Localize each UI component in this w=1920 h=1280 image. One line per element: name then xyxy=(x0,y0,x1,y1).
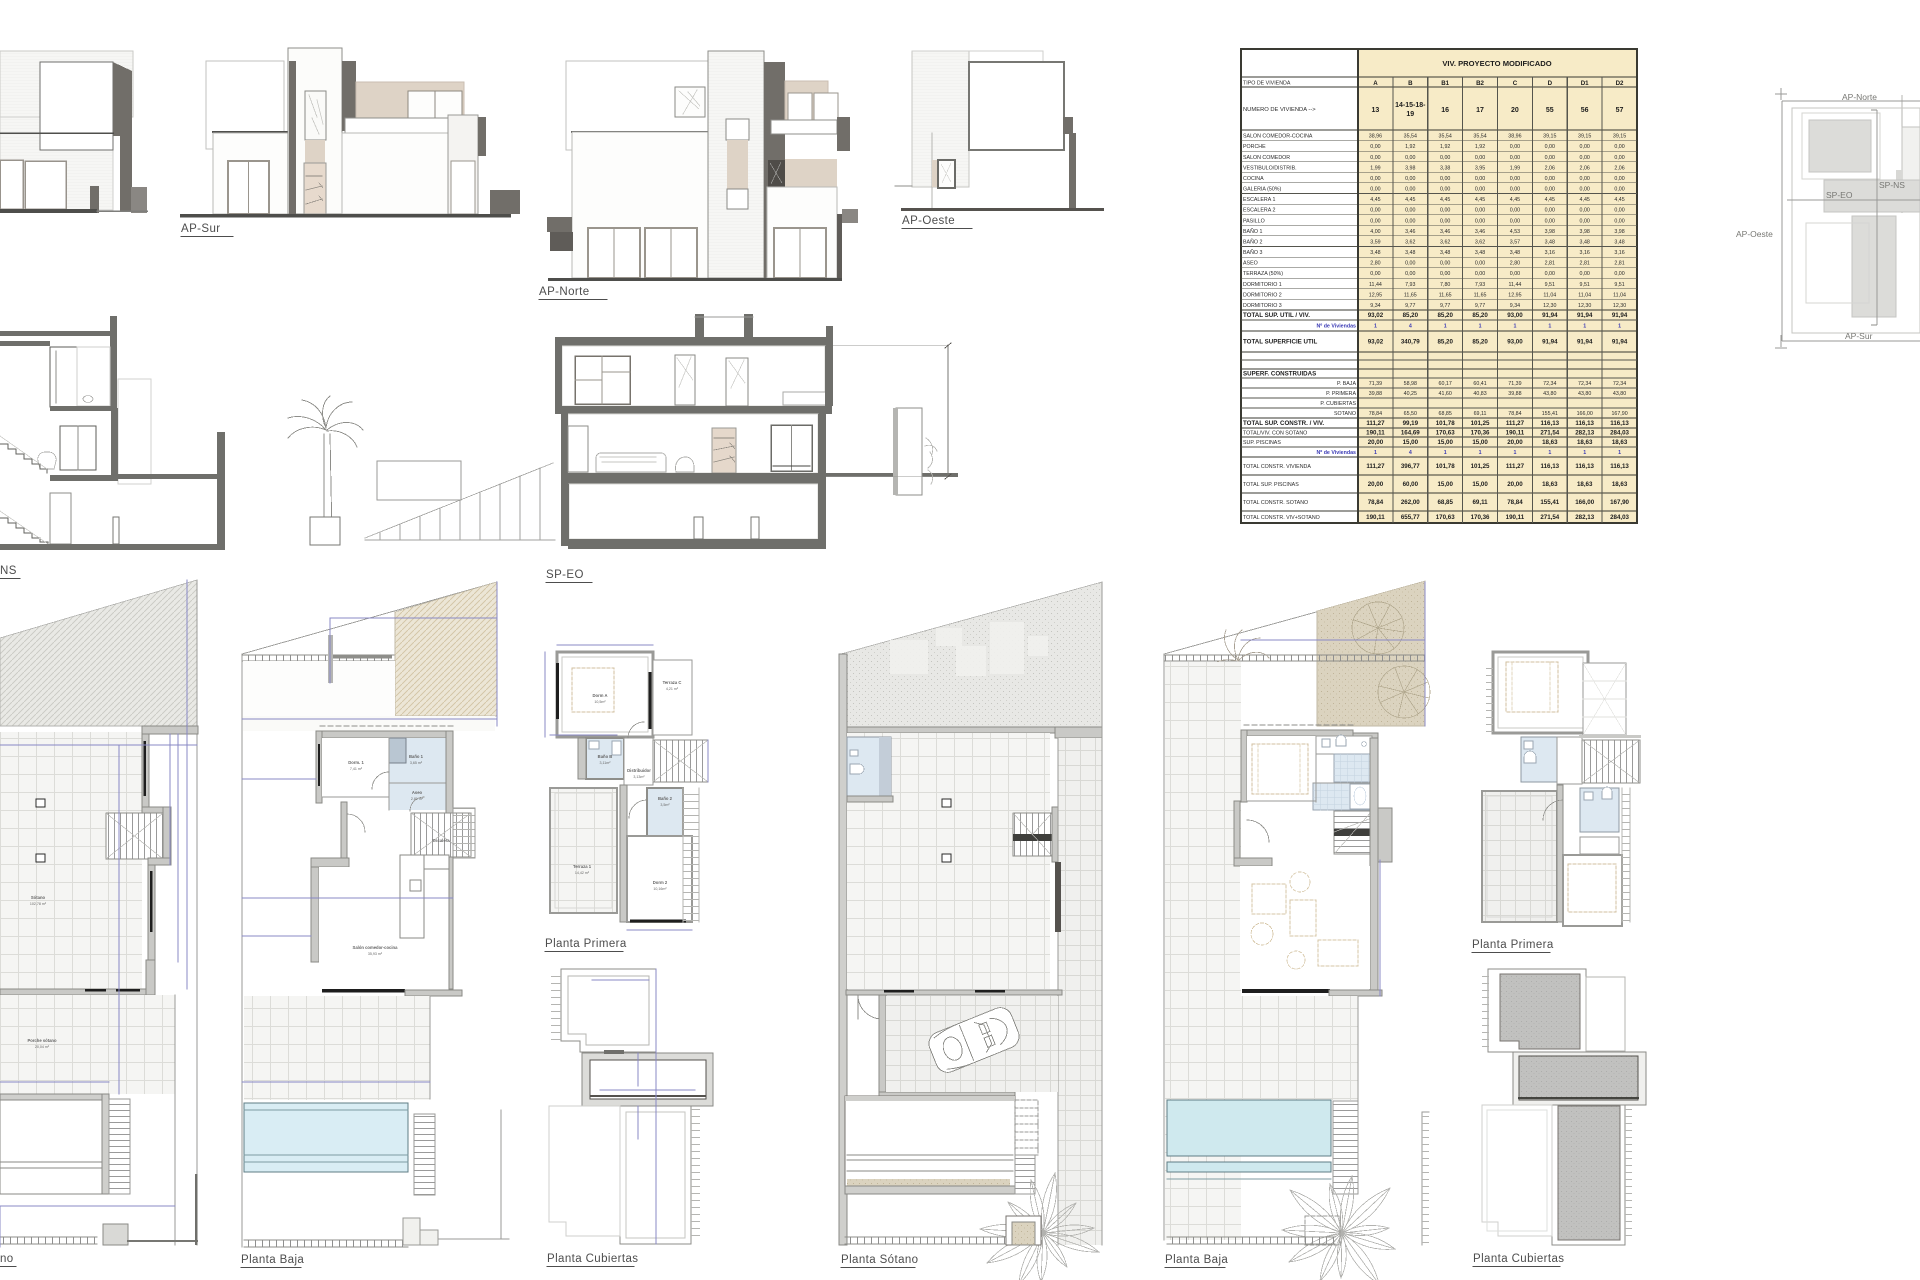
svg-text:4,45: 4,45 xyxy=(1440,197,1450,203)
svg-text:3,46: 3,46 xyxy=(1405,229,1415,235)
svg-text:TOTAL SUP. UTIL / VIV.: TOTAL SUP. UTIL / VIV. xyxy=(1243,312,1310,319)
svg-text:11,65: 11,65 xyxy=(1439,292,1452,298)
svg-text:284,03: 284,03 xyxy=(1610,430,1629,437)
svg-text:7,80: 7,80 xyxy=(1440,282,1450,288)
svg-text:69,11: 69,11 xyxy=(1472,499,1488,506)
svg-text:18,63: 18,63 xyxy=(1612,439,1628,446)
svg-text:BAÑO 2: BAÑO 2 xyxy=(1243,238,1262,245)
svg-text:3,46: 3,46 xyxy=(1440,229,1450,235)
svg-text:0,00: 0,00 xyxy=(1370,144,1380,150)
svg-text:1: 1 xyxy=(1618,324,1621,330)
svg-text:166,00: 166,00 xyxy=(1575,499,1594,506)
svg-text:3,48: 3,48 xyxy=(1440,250,1450,256)
svg-text:7,41 m²: 7,41 m² xyxy=(350,767,363,771)
svg-text:A: A xyxy=(1373,80,1378,87)
svg-text:93,00: 93,00 xyxy=(1507,312,1523,319)
svg-text:4,45: 4,45 xyxy=(1545,197,1555,203)
svg-text:39,88: 39,88 xyxy=(1369,391,1382,397)
svg-text:1: 1 xyxy=(1444,324,1447,330)
svg-text:155,41: 155,41 xyxy=(1542,411,1558,417)
svg-text:0,00: 0,00 xyxy=(1405,155,1415,161)
svg-text:0,00: 0,00 xyxy=(1440,271,1450,277)
svg-text:101,25: 101,25 xyxy=(1471,420,1490,427)
svg-text:9,51: 9,51 xyxy=(1614,282,1624,288)
svg-text:43,80: 43,80 xyxy=(1613,391,1626,397)
svg-text:SP-EO: SP-EO xyxy=(1826,190,1853,200)
svg-text:3,48: 3,48 xyxy=(1545,239,1555,245)
svg-text:P. BAJA: P. BAJA xyxy=(1337,381,1357,387)
svg-text:3,5m²: 3,5m² xyxy=(660,803,670,807)
svg-text:3,11m²: 3,11m² xyxy=(600,761,612,765)
svg-text:111,27: 111,27 xyxy=(1506,463,1525,470)
svg-text:18,63: 18,63 xyxy=(1542,481,1558,488)
svg-text:0,00: 0,00 xyxy=(1580,218,1590,224)
svg-text:Dorm A: Dorm A xyxy=(593,693,608,698)
svg-text:Terraza 1: Terraza 1 xyxy=(573,864,592,869)
svg-text:20,00: 20,00 xyxy=(1507,439,1523,446)
svg-text:Escalera: Escalera xyxy=(432,838,450,843)
svg-text:1: 1 xyxy=(1618,450,1621,456)
svg-text:0,00: 0,00 xyxy=(1545,208,1555,214)
svg-text:12,30: 12,30 xyxy=(1613,303,1626,309)
svg-text:170,63: 170,63 xyxy=(1436,514,1455,521)
svg-text:116,13: 116,13 xyxy=(1575,463,1594,470)
svg-text:Aseo: Aseo xyxy=(412,790,423,795)
svg-text:39,15: 39,15 xyxy=(1578,134,1591,140)
svg-text:1: 1 xyxy=(1513,450,1516,456)
svg-text:0,00: 0,00 xyxy=(1580,176,1590,182)
svg-text:ASEO: ASEO xyxy=(1243,261,1258,267)
svg-text:71,39: 71,39 xyxy=(1369,381,1382,387)
svg-text:19: 19 xyxy=(1406,111,1414,118)
svg-text:2,06: 2,06 xyxy=(1545,165,1555,171)
svg-text:0,00: 0,00 xyxy=(1440,208,1450,214)
svg-text:190,11: 190,11 xyxy=(1506,430,1525,437)
svg-text:4,53: 4,53 xyxy=(1510,229,1520,235)
svg-text:39,15: 39,15 xyxy=(1543,134,1556,140)
svg-text:B2: B2 xyxy=(1476,80,1484,87)
svg-text:4,45: 4,45 xyxy=(1475,197,1485,203)
svg-text:Planta Sótano: Planta Sótano xyxy=(841,1254,918,1266)
svg-text:TOTAL CONSTR. SOTANO: TOTAL CONSTR. SOTANO xyxy=(1243,500,1308,506)
svg-text:0,00: 0,00 xyxy=(1440,155,1450,161)
svg-text:91,94: 91,94 xyxy=(1542,339,1558,346)
svg-text:TERRAZA (50%): TERRAZA (50%) xyxy=(1243,271,1283,277)
svg-text:55: 55 xyxy=(1546,107,1554,114)
svg-text:4,45: 4,45 xyxy=(1510,197,1520,203)
svg-text:0,00: 0,00 xyxy=(1580,187,1590,193)
svg-text:0,00: 0,00 xyxy=(1510,187,1520,193)
svg-text:102,78 m²: 102,78 m² xyxy=(30,902,47,906)
svg-text:TOTAL/VIV. CON SOTANO: TOTAL/VIV. CON SOTANO xyxy=(1243,431,1307,437)
svg-text:0,00: 0,00 xyxy=(1475,155,1485,161)
svg-text:0,00: 0,00 xyxy=(1475,271,1485,277)
svg-text:166,00: 166,00 xyxy=(1577,411,1593,417)
svg-text:91,94: 91,94 xyxy=(1612,339,1628,346)
svg-text:9,34: 9,34 xyxy=(1370,303,1380,309)
svg-text:11,04: 11,04 xyxy=(1578,292,1591,298)
svg-text:0,00: 0,00 xyxy=(1405,218,1415,224)
svg-text:4,45: 4,45 xyxy=(1370,197,1380,203)
svg-text:170,36: 170,36 xyxy=(1471,514,1490,521)
svg-text:Dorm. 1: Dorm. 1 xyxy=(348,760,364,765)
svg-text:BAÑO 1: BAÑO 1 xyxy=(1243,228,1262,235)
svg-text:0,00: 0,00 xyxy=(1614,218,1624,224)
svg-text:93,02: 93,02 xyxy=(1368,339,1384,346)
svg-text:7,93: 7,93 xyxy=(1405,282,1415,288)
svg-text:1,99: 1,99 xyxy=(1510,165,1520,171)
svg-text:0,00: 0,00 xyxy=(1405,187,1415,193)
svg-text:17: 17 xyxy=(1476,107,1484,114)
svg-text:111,27: 111,27 xyxy=(1366,463,1385,470)
svg-text:20,00: 20,00 xyxy=(1507,481,1523,488)
svg-text:Nº de Viviendas: Nº de Viviendas xyxy=(1316,324,1356,330)
svg-text:Nº de Viviendas: Nº de Viviendas xyxy=(1316,450,1356,456)
svg-text:15,00: 15,00 xyxy=(1472,439,1488,446)
svg-text:11,65: 11,65 xyxy=(1404,292,1417,298)
svg-text:3,48: 3,48 xyxy=(1405,250,1415,256)
svg-text:101,78: 101,78 xyxy=(1436,463,1455,470)
svg-text:Porche sótano: Porche sótano xyxy=(27,1038,57,1043)
svg-text:3,48: 3,48 xyxy=(1510,250,1520,256)
svg-text:3,59: 3,59 xyxy=(1370,239,1380,245)
svg-text:111,27: 111,27 xyxy=(1366,420,1385,427)
svg-text:3,98: 3,98 xyxy=(1614,229,1624,235)
svg-text:0,00: 0,00 xyxy=(1580,208,1590,214)
svg-text:10,16m²: 10,16m² xyxy=(653,887,667,891)
svg-text:0,00: 0,00 xyxy=(1510,176,1520,182)
svg-text:93,02: 93,02 xyxy=(1368,312,1384,319)
svg-text:PASILLO: PASILLO xyxy=(1243,218,1265,224)
svg-text:1: 1 xyxy=(1583,450,1586,456)
svg-text:14-15-18-: 14-15-18- xyxy=(1395,102,1426,109)
svg-text:0,00: 0,00 xyxy=(1475,187,1485,193)
svg-text:Planta Baja: Planta Baja xyxy=(1165,1254,1228,1266)
svg-text:0,00: 0,00 xyxy=(1440,176,1450,182)
svg-text:655,77: 655,77 xyxy=(1401,514,1420,521)
svg-text:Sótano: Sótano xyxy=(31,895,46,900)
svg-text:0,00: 0,00 xyxy=(1614,144,1624,150)
svg-text:40,83: 40,83 xyxy=(1473,391,1486,397)
svg-text:190,11: 190,11 xyxy=(1366,514,1385,521)
svg-text:38,96: 38,96 xyxy=(1508,134,1521,140)
svg-text:SP-NS: SP-NS xyxy=(1879,180,1905,190)
svg-text:3,62: 3,62 xyxy=(1405,239,1415,245)
svg-text:284,03: 284,03 xyxy=(1610,514,1629,521)
svg-text:1,92: 1,92 xyxy=(1440,144,1450,150)
svg-text:0,00: 0,00 xyxy=(1614,187,1624,193)
svg-text:ESCALERA 2: ESCALERA 2 xyxy=(1243,208,1275,214)
svg-text:11,44: 11,44 xyxy=(1509,282,1522,288)
svg-text:Planta Cubiertas: Planta Cubiertas xyxy=(547,1253,638,1265)
svg-text:0,00: 0,00 xyxy=(1545,176,1555,182)
svg-text:1,99: 1,99 xyxy=(1370,165,1380,171)
svg-text:101,25: 101,25 xyxy=(1471,463,1490,470)
svg-text:111,27: 111,27 xyxy=(1506,420,1525,427)
svg-text:167,90: 167,90 xyxy=(1610,499,1629,506)
svg-text:0,00: 0,00 xyxy=(1614,155,1624,161)
svg-text:0,00: 0,00 xyxy=(1405,261,1415,267)
svg-text:15,00: 15,00 xyxy=(1472,481,1488,488)
svg-text:85,20: 85,20 xyxy=(1437,312,1453,319)
svg-text:COCINA: COCINA xyxy=(1243,176,1264,182)
svg-text:116,13: 116,13 xyxy=(1541,420,1560,427)
svg-text:AP-Sur: AP-Sur xyxy=(181,223,220,235)
svg-text:35,54: 35,54 xyxy=(1439,134,1452,140)
svg-text:4,45: 4,45 xyxy=(1405,197,1415,203)
svg-text:Planta Primera: Planta Primera xyxy=(1472,939,1554,951)
svg-text:0,00: 0,00 xyxy=(1510,271,1520,277)
svg-text:57: 57 xyxy=(1616,107,1624,114)
svg-text:68,85: 68,85 xyxy=(1437,499,1453,506)
svg-text:1: 1 xyxy=(1583,324,1586,330)
svg-text:38,96: 38,96 xyxy=(1369,134,1382,140)
svg-text:3,16: 3,16 xyxy=(1545,250,1555,256)
svg-text:16: 16 xyxy=(1441,107,1449,114)
svg-text:4,00: 4,00 xyxy=(1370,229,1380,235)
svg-text:2,80: 2,80 xyxy=(1510,261,1520,267)
svg-text:3,48: 3,48 xyxy=(1580,239,1590,245)
svg-text:TOTAL SUP. PISCINAS: TOTAL SUP. PISCINAS xyxy=(1243,482,1299,488)
svg-text:DORMITORIO 2: DORMITORIO 2 xyxy=(1243,292,1282,298)
svg-text:D1: D1 xyxy=(1581,80,1589,87)
svg-text:0,00: 0,00 xyxy=(1545,144,1555,150)
svg-text:11,44: 11,44 xyxy=(1369,282,1382,288)
svg-text:11,04: 11,04 xyxy=(1613,292,1626,298)
svg-text:AP-Sur: AP-Sur xyxy=(1845,331,1873,341)
svg-text:2,80: 2,80 xyxy=(1370,261,1380,267)
svg-text:0,00: 0,00 xyxy=(1370,187,1380,193)
svg-text:0,00: 0,00 xyxy=(1440,187,1450,193)
svg-text:78,84: 78,84 xyxy=(1508,411,1521,417)
svg-text:TOTAL CONSTR. VIV+SOTANO: TOTAL CONSTR. VIV+SOTANO xyxy=(1243,515,1320,521)
svg-text:0,00: 0,00 xyxy=(1580,155,1590,161)
svg-text:91,94: 91,94 xyxy=(1577,312,1593,319)
svg-text:3,98: 3,98 xyxy=(1405,165,1415,171)
svg-text:0,00: 0,00 xyxy=(1405,271,1415,277)
svg-text:41,60: 41,60 xyxy=(1439,391,1452,397)
svg-text:72,34: 72,34 xyxy=(1543,381,1556,387)
svg-text:4: 4 xyxy=(1409,450,1412,456)
svg-text:3,48: 3,48 xyxy=(1475,250,1485,256)
svg-text:58,98: 58,98 xyxy=(1404,381,1417,387)
svg-text:ESCALERA 1: ESCALERA 1 xyxy=(1243,197,1275,203)
svg-text:68,85: 68,85 xyxy=(1439,411,1452,417)
svg-text:9,77: 9,77 xyxy=(1440,303,1450,309)
svg-text:0,00: 0,00 xyxy=(1370,218,1380,224)
svg-text:Terraza C: Terraza C xyxy=(663,680,682,685)
svg-text:Planta Primera: Planta Primera xyxy=(545,938,627,950)
svg-text:18,63: 18,63 xyxy=(1542,439,1558,446)
svg-text:116,13: 116,13 xyxy=(1575,420,1594,427)
svg-text:85,20: 85,20 xyxy=(1437,339,1453,346)
svg-text:15,00: 15,00 xyxy=(1403,439,1419,446)
svg-text:78,84: 78,84 xyxy=(1368,499,1384,506)
svg-text:9,51: 9,51 xyxy=(1580,282,1590,288)
svg-text:1: 1 xyxy=(1548,324,1551,330)
svg-text:101,78: 101,78 xyxy=(1436,420,1455,427)
svg-text:13: 13 xyxy=(1372,107,1380,114)
svg-text:43,80: 43,80 xyxy=(1578,391,1591,397)
svg-text:9,77: 9,77 xyxy=(1475,303,1485,309)
svg-text:4,45: 4,45 xyxy=(1614,197,1624,203)
svg-text:72,34: 72,34 xyxy=(1613,381,1626,387)
svg-text:0,00: 0,00 xyxy=(1440,218,1450,224)
svg-text:91,94: 91,94 xyxy=(1612,312,1628,319)
svg-text:SUP. PISCINAS: SUP. PISCINAS xyxy=(1243,440,1281,446)
svg-text:Salón comedor-cocina: Salón comedor-cocina xyxy=(353,945,399,950)
svg-text:3,16: 3,16 xyxy=(1580,250,1590,256)
svg-text:TOTAL SUP. CONSTR. / VIV.: TOTAL SUP. CONSTR. / VIV. xyxy=(1243,420,1324,427)
svg-text:NS: NS xyxy=(0,565,17,577)
svg-text:282,13: 282,13 xyxy=(1575,430,1594,437)
svg-text:262,00: 262,00 xyxy=(1401,499,1420,506)
svg-text:0,00: 0,00 xyxy=(1580,144,1590,150)
svg-text:39,15: 39,15 xyxy=(1613,134,1626,140)
svg-text:396,77: 396,77 xyxy=(1401,463,1420,470)
svg-text:Planta Baja: Planta Baja xyxy=(241,1254,304,1266)
svg-text:85,20: 85,20 xyxy=(1472,312,1488,319)
svg-text:SALON COMEDOR-COCINA: SALON COMEDOR-COCINA xyxy=(1243,134,1313,140)
svg-text:190,11: 190,11 xyxy=(1506,514,1525,521)
svg-text:0,00: 0,00 xyxy=(1545,271,1555,277)
svg-text:12,95: 12,95 xyxy=(1369,292,1382,298)
svg-text:65,50: 65,50 xyxy=(1404,411,1417,417)
svg-text:3,48: 3,48 xyxy=(1370,250,1380,256)
svg-text:DORMITORIO 1: DORMITORIO 1 xyxy=(1243,282,1282,288)
svg-text:116,13: 116,13 xyxy=(1541,463,1560,470)
svg-text:AP-Oeste: AP-Oeste xyxy=(902,215,955,227)
svg-text:Baño B: Baño B xyxy=(598,754,613,759)
svg-text:0,00: 0,00 xyxy=(1545,218,1555,224)
svg-text:72,34: 72,34 xyxy=(1578,381,1591,387)
svg-text:SP-EO: SP-EO xyxy=(546,569,584,581)
svg-text:40,25: 40,25 xyxy=(1404,391,1417,397)
svg-text:Distribuidor: Distribuidor xyxy=(627,768,651,773)
svg-text:10,5m²: 10,5m² xyxy=(594,700,606,704)
svg-text:35,54: 35,54 xyxy=(1473,134,1486,140)
svg-text:D: D xyxy=(1548,80,1553,87)
svg-text:Baño 1: Baño 1 xyxy=(409,754,424,759)
svg-text:35,54: 35,54 xyxy=(1404,134,1417,140)
svg-text:7,93: 7,93 xyxy=(1475,282,1485,288)
svg-text:0,00: 0,00 xyxy=(1510,218,1520,224)
svg-text:D2: D2 xyxy=(1616,80,1624,87)
svg-text:340,79: 340,79 xyxy=(1401,339,1420,346)
svg-text:VIV. PROYECTO MODIFICADO: VIV. PROYECTO MODIFICADO xyxy=(1442,59,1551,68)
svg-text:0,00: 0,00 xyxy=(1475,218,1485,224)
svg-text:12,95: 12,95 xyxy=(1508,292,1521,298)
svg-text:0,00: 0,00 xyxy=(1370,176,1380,182)
svg-text:4: 4 xyxy=(1409,324,1412,330)
svg-text:11,04: 11,04 xyxy=(1543,292,1556,298)
svg-text:1: 1 xyxy=(1374,450,1377,456)
svg-text:43,80: 43,80 xyxy=(1543,391,1556,397)
svg-text:60,41: 60,41 xyxy=(1473,381,1486,387)
svg-text:18,63: 18,63 xyxy=(1577,439,1593,446)
svg-text:93,00: 93,00 xyxy=(1507,339,1523,346)
svg-text:0,00: 0,00 xyxy=(1510,155,1520,161)
svg-text:B: B xyxy=(1408,80,1413,87)
svg-text:3,57: 3,57 xyxy=(1510,239,1520,245)
svg-text:2,06: 2,06 xyxy=(1580,165,1590,171)
svg-text:3,65 m²: 3,65 m² xyxy=(410,761,423,765)
svg-text:AP-Oeste: AP-Oeste xyxy=(1736,229,1773,239)
svg-text:116,13: 116,13 xyxy=(1610,463,1629,470)
svg-text:1,92: 1,92 xyxy=(1475,144,1485,150)
svg-text:SALON COMEDOR: SALON COMEDOR xyxy=(1243,155,1290,161)
svg-text:18,63: 18,63 xyxy=(1577,481,1593,488)
svg-text:14,42 m²: 14,42 m² xyxy=(575,871,590,875)
svg-text:85,20: 85,20 xyxy=(1403,312,1419,319)
svg-text:170,36: 170,36 xyxy=(1471,430,1490,437)
svg-text:2,06: 2,06 xyxy=(1614,165,1624,171)
svg-text:20,00: 20,00 xyxy=(1368,481,1384,488)
svg-text:3,46: 3,46 xyxy=(1475,229,1485,235)
svg-text:1: 1 xyxy=(1374,324,1377,330)
svg-text:78,84: 78,84 xyxy=(1369,411,1382,417)
svg-text:no: no xyxy=(0,1253,14,1265)
svg-text:1: 1 xyxy=(1513,324,1516,330)
svg-text:Baño 2: Baño 2 xyxy=(658,796,673,801)
svg-text:2,81: 2,81 xyxy=(1614,261,1624,267)
svg-text:C: C xyxy=(1513,80,1518,87)
svg-text:AP-Norte: AP-Norte xyxy=(539,286,590,298)
svg-text:282,13: 282,13 xyxy=(1575,514,1594,521)
svg-text:60,00: 60,00 xyxy=(1403,481,1419,488)
svg-text:TOTAL CONSTR. VIVIENDA: TOTAL CONSTR. VIVIENDA xyxy=(1243,464,1311,470)
svg-text:3,98: 3,98 xyxy=(1545,229,1555,235)
svg-text:91,94: 91,94 xyxy=(1542,312,1558,319)
svg-text:DORMITORIO 3: DORMITORIO 3 xyxy=(1243,303,1282,309)
svg-text:9,34: 9,34 xyxy=(1510,303,1520,309)
svg-text:11,65: 11,65 xyxy=(1474,292,1487,298)
svg-text:12,30: 12,30 xyxy=(1578,303,1591,309)
svg-text:3,16: 3,16 xyxy=(1614,250,1624,256)
svg-text:91,94: 91,94 xyxy=(1577,339,1593,346)
svg-text:1: 1 xyxy=(1548,450,1551,456)
svg-text:TOTAL SUPERFICIE UTIL: TOTAL SUPERFICIE UTIL xyxy=(1243,339,1317,346)
svg-text:SUPERF. CONSTRUIDAS: SUPERF. CONSTRUIDAS xyxy=(1243,371,1316,378)
svg-text:0,00: 0,00 xyxy=(1545,155,1555,161)
svg-text:1: 1 xyxy=(1444,450,1447,456)
svg-text:9,51: 9,51 xyxy=(1545,282,1555,288)
svg-text:0,00: 0,00 xyxy=(1614,208,1624,214)
svg-text:0,00: 0,00 xyxy=(1405,208,1415,214)
svg-text:NUMERO DE VIVIENDA -->: NUMERO DE VIVIENDA --> xyxy=(1243,107,1316,113)
svg-text:0,00: 0,00 xyxy=(1614,176,1624,182)
svg-text:0,00: 0,00 xyxy=(1475,208,1485,214)
svg-text:0,00: 0,00 xyxy=(1370,155,1380,161)
svg-text:0,00: 0,00 xyxy=(1510,208,1520,214)
svg-text:2,81: 2,81 xyxy=(1580,261,1590,267)
svg-text:0,00: 0,00 xyxy=(1405,176,1415,182)
svg-text:Dorm 2: Dorm 2 xyxy=(653,880,668,885)
svg-text:0,00: 0,00 xyxy=(1475,261,1485,267)
svg-text:SOTANO: SOTANO xyxy=(1334,411,1356,417)
svg-text:170,63: 170,63 xyxy=(1436,430,1455,437)
svg-text:3,38: 3,38 xyxy=(1440,165,1450,171)
svg-text:12,30: 12,30 xyxy=(1543,303,1556,309)
svg-text:20,04 m²: 20,04 m² xyxy=(35,1045,50,1049)
svg-text:2,81: 2,81 xyxy=(1545,261,1555,267)
svg-text:1: 1 xyxy=(1479,324,1482,330)
svg-text:271,54: 271,54 xyxy=(1540,514,1559,521)
svg-text:P. PRIMERA: P. PRIMERA xyxy=(1326,391,1356,397)
svg-text:3,48: 3,48 xyxy=(1614,239,1624,245)
svg-text:BAÑO 3: BAÑO 3 xyxy=(1243,249,1262,256)
svg-text:85,20: 85,20 xyxy=(1472,339,1488,346)
